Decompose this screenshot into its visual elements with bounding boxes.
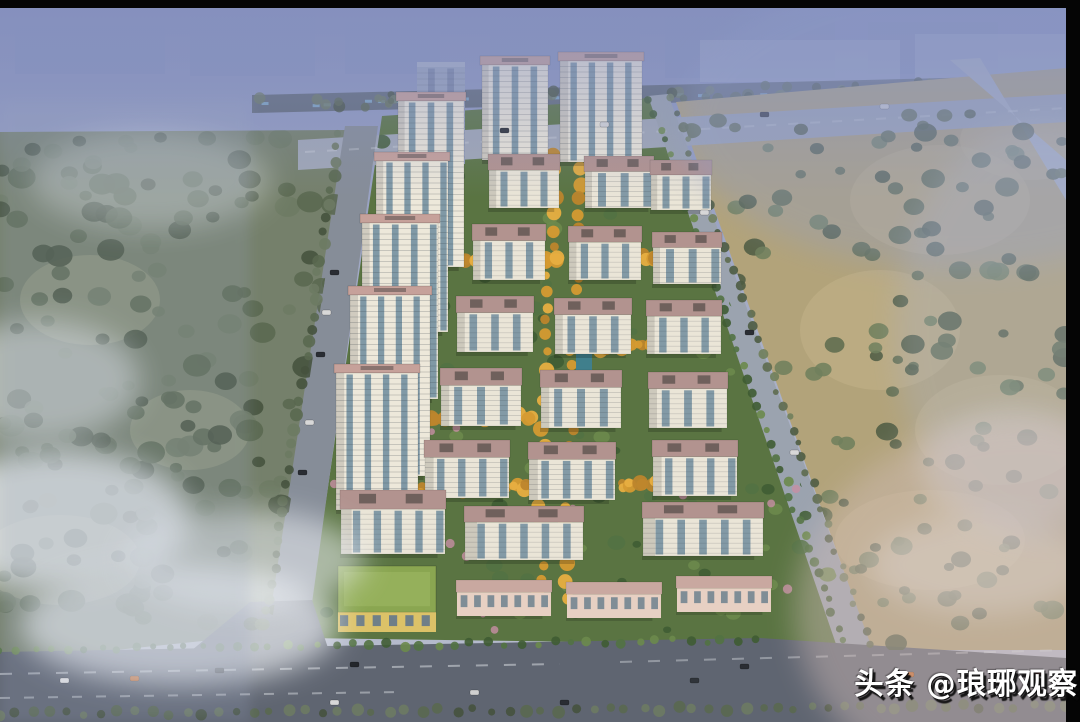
aerial-render-photo: 头条 @琅琊观察 [0,0,1080,722]
watermark: 头条 @琅琊观察 [854,668,1077,702]
watermark-text: 头条 @琅琊观察 [854,667,1078,702]
scene-canvas [0,0,1080,722]
